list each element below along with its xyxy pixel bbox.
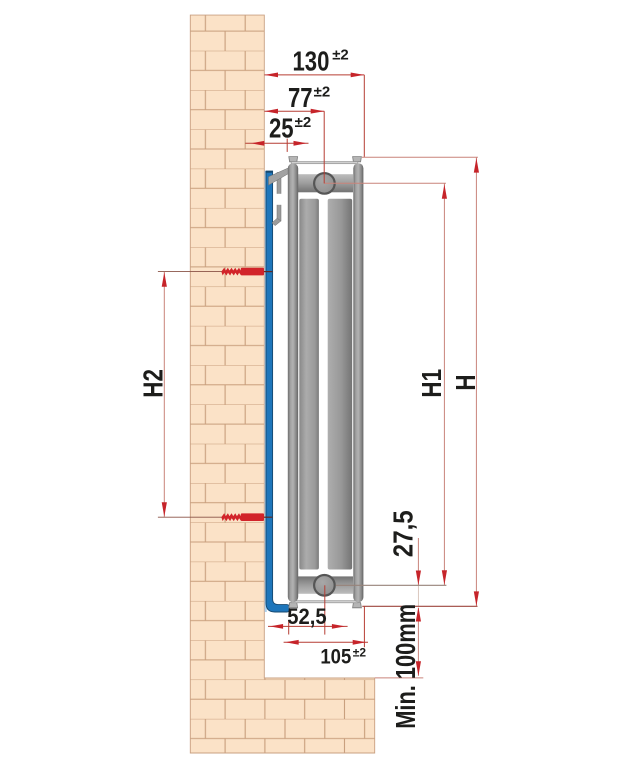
svg-text:±2: ±2 [295, 114, 312, 131]
svg-text:H1: H1 [417, 369, 448, 398]
svg-text:130: 130 [293, 46, 330, 77]
svg-text:±2: ±2 [314, 83, 331, 100]
svg-text:25: 25 [269, 113, 294, 144]
svg-text:Min. 100mm: Min. 100mm [390, 604, 421, 729]
svg-text:105: 105 [320, 646, 351, 669]
svg-text:27,5: 27,5 [387, 510, 419, 557]
svg-text:77: 77 [288, 83, 313, 114]
svg-text:±2: ±2 [353, 646, 367, 660]
svg-text:H2: H2 [138, 369, 169, 398]
svg-text:±2: ±2 [332, 47, 349, 64]
svg-text:H: H [451, 374, 482, 390]
svg-text:52,5: 52,5 [287, 605, 327, 629]
